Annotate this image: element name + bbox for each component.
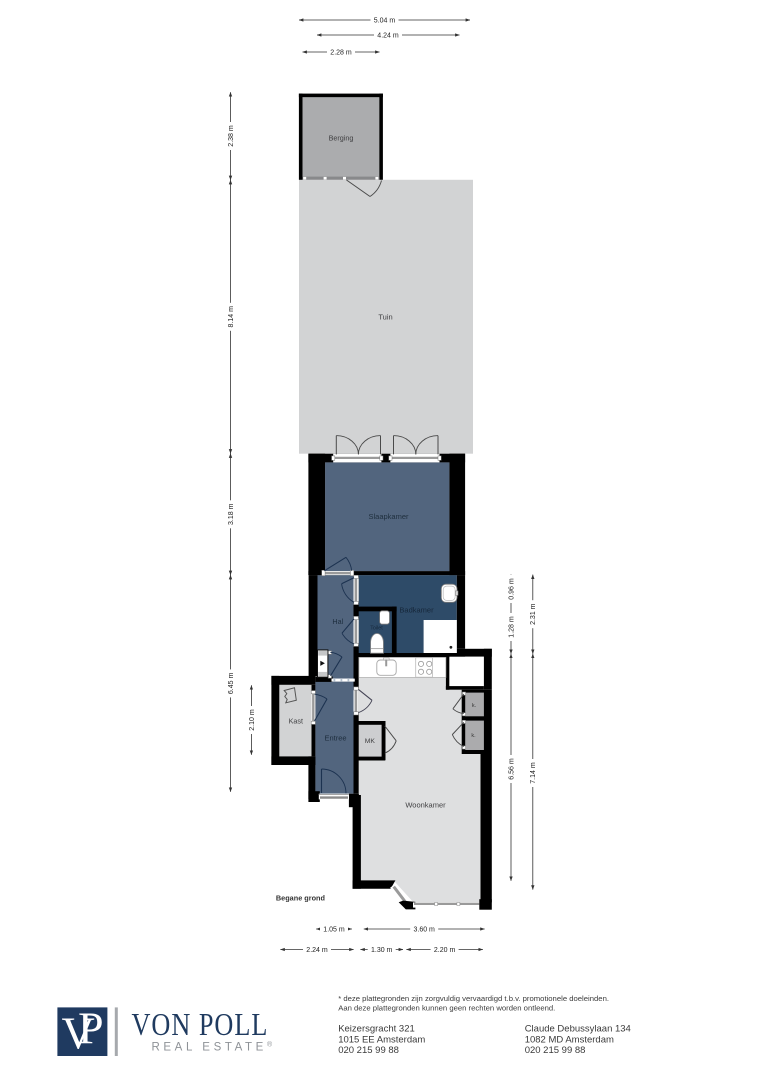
- svg-text:4.24 m: 4.24 m: [377, 33, 399, 40]
- svg-text:Tuin: Tuin: [378, 313, 392, 322]
- svg-text:2.28 m: 2.28 m: [330, 50, 352, 57]
- svg-text:Keizersgracht 321: Keizersgracht 321: [338, 1024, 415, 1035]
- svg-text:2.24 m: 2.24 m: [306, 947, 328, 954]
- svg-text:Kast: Kast: [289, 717, 303, 726]
- svg-text:020 215 99 88: 020 215 99 88: [525, 1045, 586, 1056]
- svg-text:1.05 m: 1.05 m: [323, 927, 345, 934]
- svg-text:VON POLL: VON POLL: [132, 1007, 269, 1042]
- svg-text:Badkamer: Badkamer: [399, 606, 434, 615]
- svg-text:0.96 m: 0.96 m: [508, 578, 515, 600]
- svg-text:1.28 m: 1.28 m: [508, 616, 515, 638]
- svg-text:1082 MD Amsterdam: 1082 MD Amsterdam: [525, 1034, 614, 1045]
- svg-text:1015 EE Amsterdam: 1015 EE Amsterdam: [338, 1034, 425, 1045]
- svg-text:3.60 m: 3.60 m: [413, 927, 435, 934]
- svg-text:6.45 m: 6.45 m: [228, 673, 235, 695]
- svg-text:Entree: Entree: [324, 734, 346, 743]
- svg-text:8.14 m: 8.14 m: [228, 306, 235, 328]
- svg-text:020 215 99 88: 020 215 99 88: [338, 1045, 399, 1056]
- svg-text:MK: MK: [365, 738, 376, 745]
- svg-text:k.: k.: [472, 703, 477, 709]
- svg-text:* deze plattegronden zijn zorg: * deze plattegronden zijn zorgvuldig ver…: [338, 994, 609, 1003]
- svg-text:Aan deze plattegronden kunnen: Aan deze plattegronden kunnen geen recht…: [338, 1003, 555, 1012]
- svg-text:7.14 m: 7.14 m: [530, 762, 537, 784]
- svg-text:Toilet: Toilet: [370, 626, 383, 632]
- svg-text:Begane grond: Begane grond: [276, 894, 325, 903]
- svg-text:Berging: Berging: [329, 134, 354, 143]
- svg-text:1.30 m: 1.30 m: [371, 947, 393, 954]
- svg-text:3.18 m: 3.18 m: [228, 503, 235, 525]
- svg-text:P: P: [78, 1003, 104, 1054]
- svg-text:2.31 m: 2.31 m: [530, 603, 537, 625]
- svg-text:2.10 m: 2.10 m: [249, 709, 256, 731]
- svg-text:6.56 m: 6.56 m: [508, 758, 515, 780]
- svg-text:Slaapkamer: Slaapkamer: [368, 512, 409, 521]
- svg-text:2.38 m: 2.38 m: [228, 125, 235, 147]
- svg-text:Hal: Hal: [332, 617, 343, 626]
- svg-text:2.20 m: 2.20 m: [434, 947, 456, 954]
- svg-text:Claude Debussylaan 134: Claude Debussylaan 134: [525, 1024, 631, 1035]
- svg-text:REAL ESTATE®: REAL ESTATE®: [152, 1041, 276, 1054]
- svg-text:k.: k.: [471, 733, 476, 739]
- svg-text:5.04 m: 5.04 m: [374, 18, 396, 25]
- svg-text:Woonkamer: Woonkamer: [405, 801, 446, 810]
